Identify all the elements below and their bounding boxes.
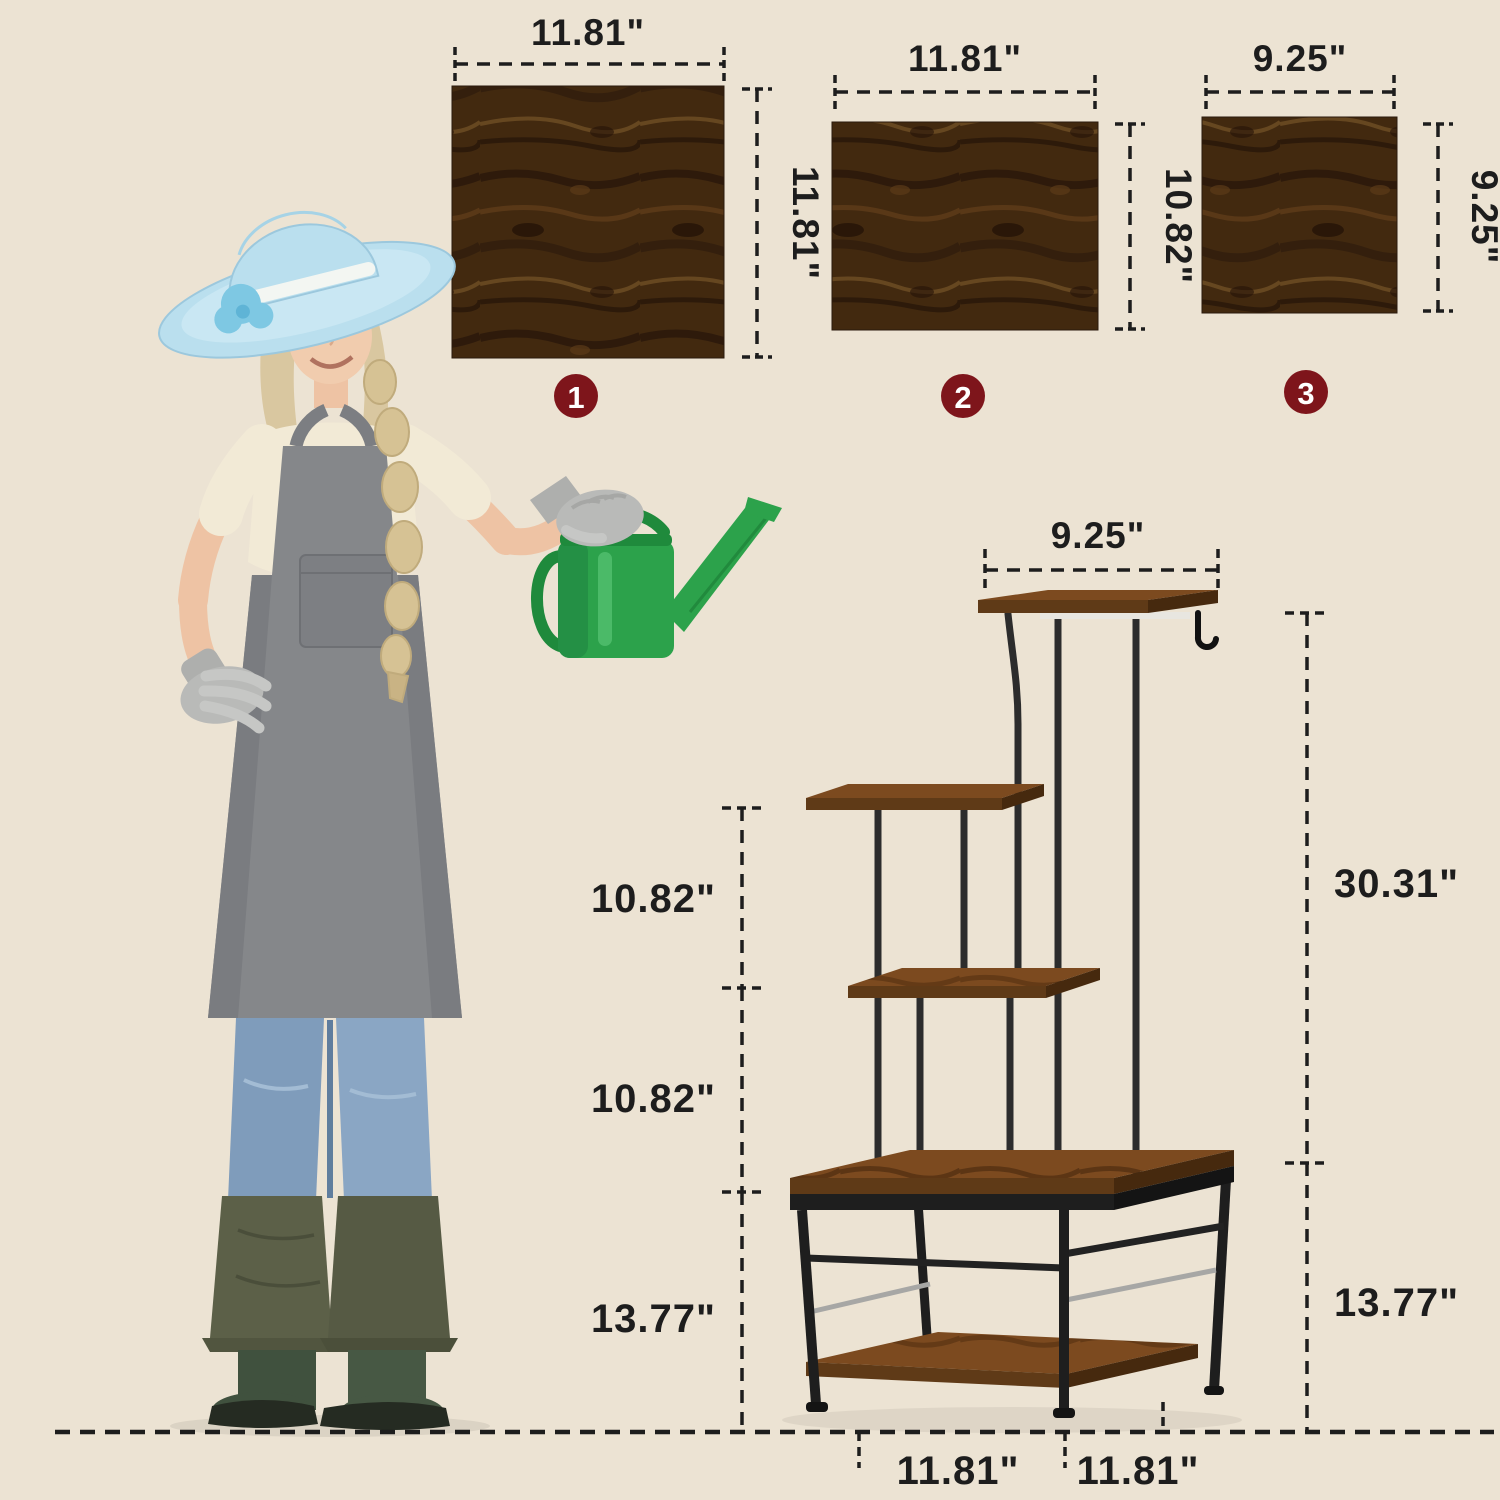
panel-1-width-label: 11.81" (531, 12, 645, 53)
stand-base-width-label: 11.81" (1077, 1449, 1200, 1493)
stand-tier-1 (806, 1332, 1198, 1388)
stand-tier-4 (806, 784, 1044, 810)
stand-base-depth-label: 11.81" (897, 1449, 1020, 1493)
panel-2-wood (832, 122, 1098, 330)
panel-3-wood (1202, 117, 1397, 313)
panel-1-wood (452, 86, 724, 358)
stand-gap-middle-label: 10.82" (591, 1077, 716, 1121)
wood-panel-2: 11.81" 10.82" 2 (832, 38, 1199, 418)
panel-1-badge: 1 (554, 374, 598, 418)
wood-panel-1: 11.81" 11.81" 1 (452, 12, 826, 418)
plant-stand (782, 590, 1242, 1433)
stand-base-front-legs (802, 1210, 1224, 1418)
wood-panel-3: 9.25" 9.25" 3 (1202, 38, 1500, 414)
panel-3-badge-number: 3 (1297, 376, 1314, 411)
panel-2-badge: 2 (941, 374, 985, 418)
stand-tier-3 (848, 968, 1100, 998)
panel-2-width-label: 11.81" (908, 38, 1022, 79)
scene-svg: 11.81" 11.81" 1 11.81" 10.82" 2 (0, 0, 1500, 1500)
product-dimension-diagram: 11.81" 11.81" 1 11.81" 10.82" 2 (0, 0, 1500, 1500)
hanging-hook-icon (1198, 613, 1216, 647)
stand-tier-2 (790, 1150, 1234, 1210)
stand-top-width-label: 9.25" (1051, 515, 1146, 556)
panel-1-badge-number: 1 (567, 380, 584, 415)
stand-gap-top-label: 10.82" (591, 877, 716, 921)
stand-shadow (782, 1407, 1242, 1433)
stand-base-height-right-label: 13.77" (1334, 1281, 1459, 1325)
panel-3-height-label: 9.25" (1464, 170, 1500, 265)
boot-covers (202, 1196, 458, 1352)
panel-2-badge-number: 2 (954, 380, 971, 415)
stand-upper-height-label: 30.31" (1334, 862, 1459, 906)
gardener-illustration (138, 178, 782, 1437)
panel-3-width-label: 9.25" (1253, 38, 1348, 79)
stand-base-rails (806, 1226, 1224, 1312)
stand-base-height-left-label: 13.77" (591, 1297, 716, 1341)
rubber-boots (208, 1350, 450, 1430)
panel-2-height-label: 10.82" (1158, 168, 1199, 284)
apron-pocket (300, 555, 392, 647)
panel-1-height-label: 11.81" (785, 166, 826, 280)
panel-3-badge: 3 (1284, 370, 1328, 414)
stand-poles-upper (1008, 604, 1136, 1180)
jeans (228, 1018, 432, 1200)
